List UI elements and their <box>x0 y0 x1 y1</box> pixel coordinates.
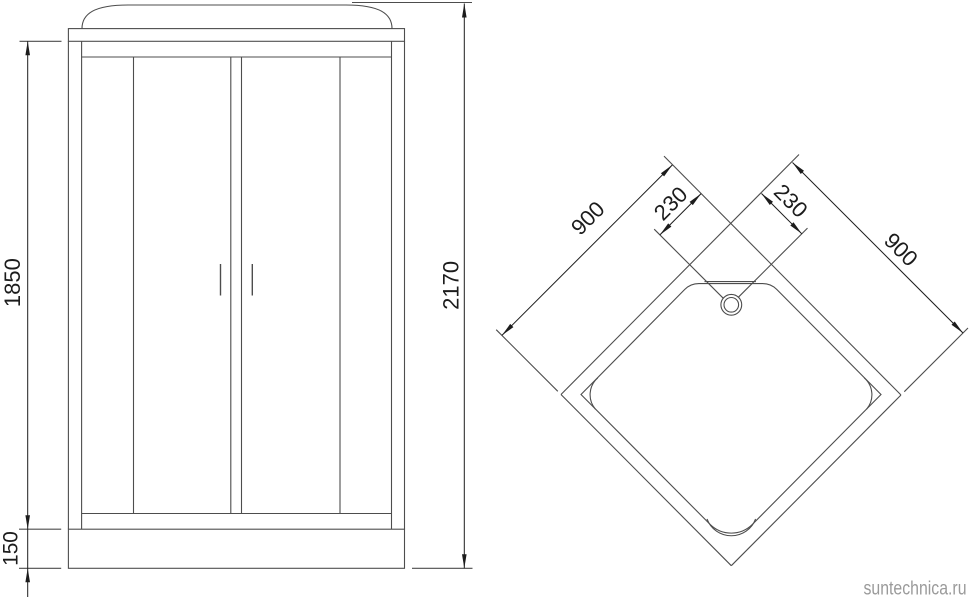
svg-text:2170: 2170 <box>438 261 463 310</box>
svg-text:suntechnica.ru: suntechnica.ru <box>864 577 967 599</box>
svg-text:900: 900 <box>566 196 610 240</box>
svg-text:230: 230 <box>649 182 693 226</box>
svg-text:1850: 1850 <box>0 258 25 307</box>
svg-text:150: 150 <box>0 531 23 566</box>
svg-text:230: 230 <box>769 179 813 223</box>
svg-text:900: 900 <box>879 228 923 272</box>
